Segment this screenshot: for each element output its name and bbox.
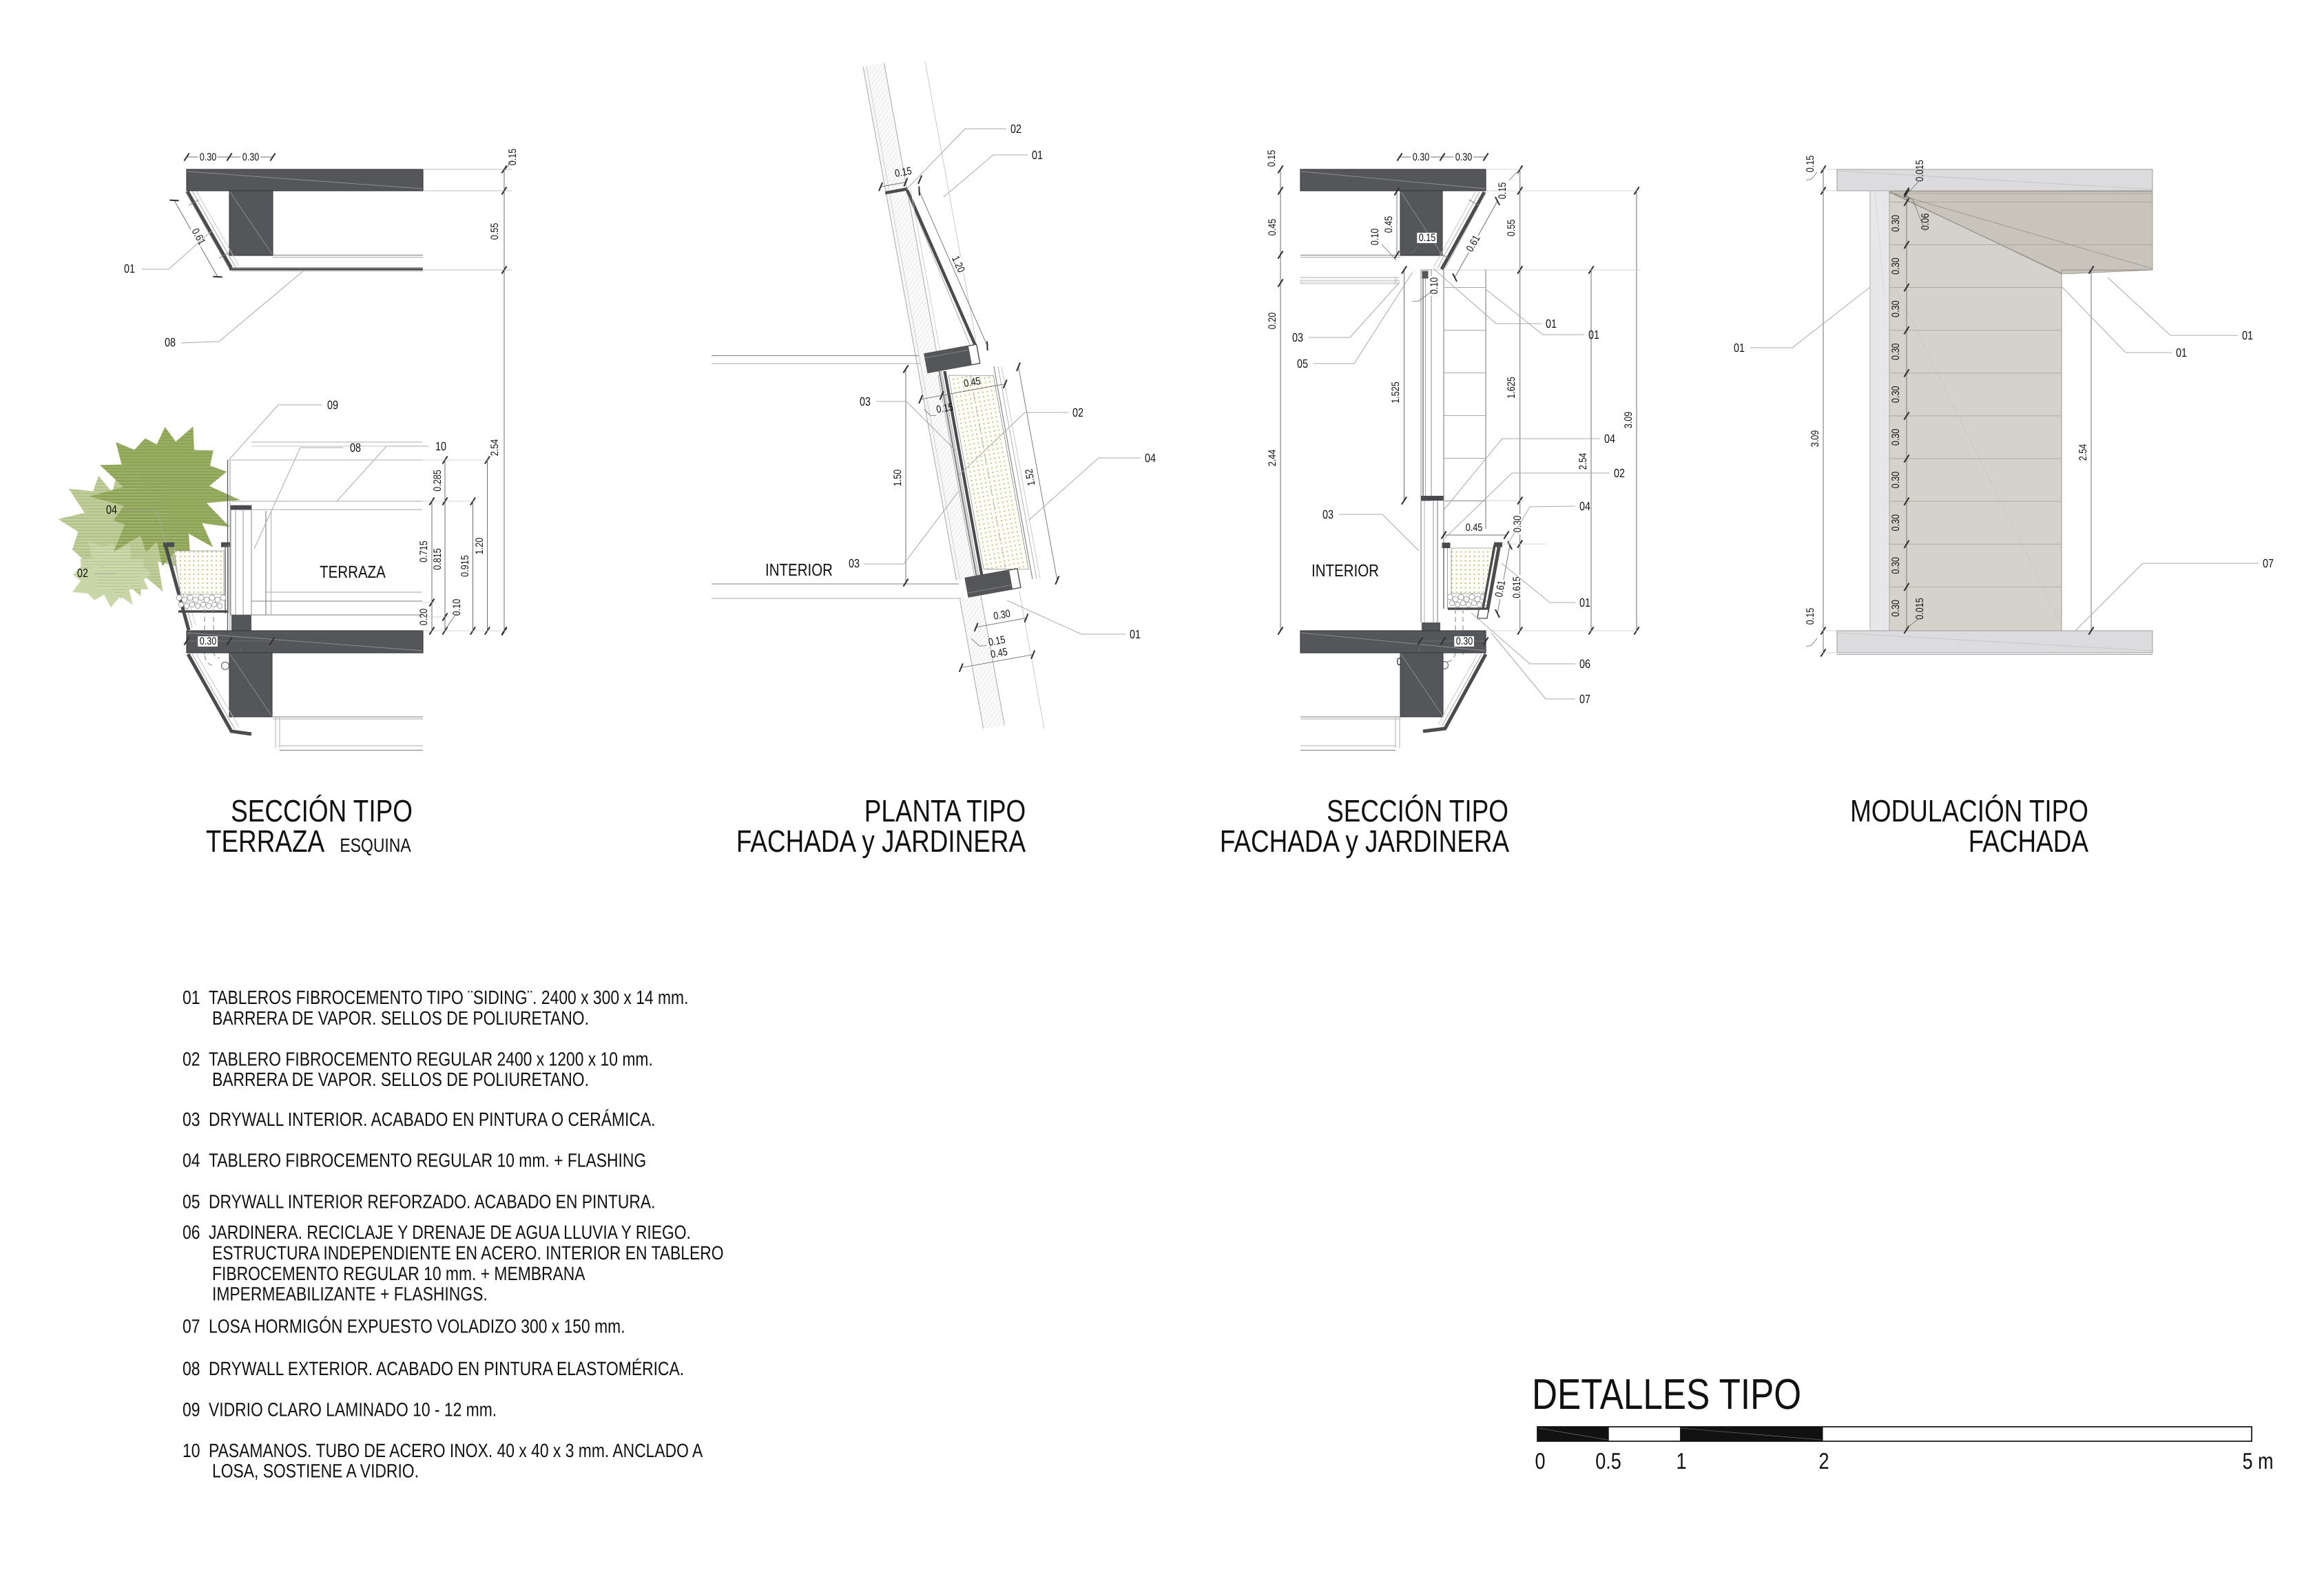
svg-text:06: 06 xyxy=(1579,657,1590,671)
svg-text:FACHADA y JARDINERA: FACHADA y JARDINERA xyxy=(1220,824,1509,859)
svg-text:0.285: 0.285 xyxy=(432,470,444,492)
svg-text:02: 02 xyxy=(1614,466,1625,480)
svg-text:0: 0 xyxy=(1535,1448,1545,1474)
svg-text:INTERIOR: INTERIOR xyxy=(765,561,833,580)
svg-text:06: 06 xyxy=(183,1222,200,1243)
svg-text:ESQUINA: ESQUINA xyxy=(340,835,411,856)
svg-text:01: 01 xyxy=(2176,346,2187,359)
svg-text:0.30: 0.30 xyxy=(242,151,260,163)
svg-text:DRYWALL EXTERIOR. ACABADO EN P: DRYWALL EXTERIOR. ACABADO EN PINTURA ELA… xyxy=(209,1358,684,1379)
svg-text:04: 04 xyxy=(106,503,117,516)
svg-text:04: 04 xyxy=(1579,499,1590,513)
svg-text:01: 01 xyxy=(1734,341,1745,355)
svg-text:02: 02 xyxy=(1072,406,1083,419)
svg-text:0.10: 0.10 xyxy=(451,599,463,616)
svg-text:03: 03 xyxy=(860,395,871,408)
svg-text:08: 08 xyxy=(183,1358,200,1379)
svg-text:09: 09 xyxy=(183,1399,200,1420)
svg-text:JARDINERA. RECICLAJE Y DRENAJE: JARDINERA. RECICLAJE Y DRENAJE DE AGUA L… xyxy=(209,1222,691,1243)
svg-text:1.525: 1.525 xyxy=(1390,381,1402,404)
svg-text:10: 10 xyxy=(183,1440,200,1461)
svg-text:3.09: 3.09 xyxy=(1623,412,1635,429)
svg-text:0.30: 0.30 xyxy=(1455,151,1473,163)
svg-text:0.10: 0.10 xyxy=(1429,278,1440,295)
svg-text:0.45: 0.45 xyxy=(1383,216,1395,233)
svg-text:0.45: 0.45 xyxy=(1466,522,1483,534)
svg-text:FACHADA: FACHADA xyxy=(1969,824,2088,859)
svg-text:0.45: 0.45 xyxy=(1267,219,1278,236)
svg-text:08: 08 xyxy=(165,335,176,349)
svg-text:FACHADA y JARDINERA: FACHADA y JARDINERA xyxy=(736,824,1026,859)
svg-text:0.30: 0.30 xyxy=(1890,215,1902,232)
svg-text:02: 02 xyxy=(183,1048,200,1069)
svg-text:0.30: 0.30 xyxy=(1413,151,1430,163)
svg-text:0.30: 0.30 xyxy=(1890,300,1902,317)
svg-text:DETALLES TIPO: DETALLES TIPO xyxy=(1532,1370,1801,1419)
svg-text:01: 01 xyxy=(1588,328,1599,342)
svg-text:TERRAZA: TERRAZA xyxy=(320,563,386,582)
svg-text:0.15: 0.15 xyxy=(1419,232,1436,244)
svg-text:VIDRIO CLARO LAMINADO 10 - 12: VIDRIO CLARO LAMINADO 10 - 12 mm. xyxy=(209,1399,497,1420)
svg-text:01: 01 xyxy=(124,262,135,275)
svg-text:0.15: 0.15 xyxy=(1805,156,1816,173)
svg-text:0.30: 0.30 xyxy=(1890,258,1902,275)
svg-text:07: 07 xyxy=(1579,692,1590,706)
svg-text:0.30: 0.30 xyxy=(1890,557,1902,574)
svg-text:ESTRUCTURA INDEPENDIENTE EN AC: ESTRUCTURA INDEPENDIENTE EN ACERO. INTER… xyxy=(212,1242,724,1264)
svg-text:02: 02 xyxy=(77,566,88,580)
svg-text:0.30: 0.30 xyxy=(1890,600,1902,617)
svg-text:BARRERA DE VAPOR. SELLOS DE PO: BARRERA DE VAPOR. SELLOS DE POLIURETANO. xyxy=(212,1007,589,1029)
svg-text:03: 03 xyxy=(183,1109,200,1130)
svg-text:0.30: 0.30 xyxy=(200,151,217,163)
svg-text:05: 05 xyxy=(1297,357,1308,370)
svg-text:1.50: 1.50 xyxy=(892,470,904,487)
svg-text:08: 08 xyxy=(350,441,361,454)
svg-text:0.015: 0.015 xyxy=(1914,160,1926,182)
svg-text:LOSA HORMIGÓN EXPUESTO VOLADIZ: LOSA HORMIGÓN EXPUESTO VOLADIZO 300 x 15… xyxy=(209,1316,625,1337)
svg-text:TERRAZA: TERRAZA xyxy=(206,824,324,859)
svg-text:0.615: 0.615 xyxy=(1511,576,1523,598)
svg-text:04: 04 xyxy=(1604,432,1615,446)
svg-text:TABLERO FIBROCEMENTO REGULAR 2: TABLERO FIBROCEMENTO REGULAR 2400 x 1200… xyxy=(209,1048,653,1069)
svg-text:02: 02 xyxy=(1010,122,1021,136)
svg-text:03: 03 xyxy=(1292,331,1303,344)
svg-text:0.55: 0.55 xyxy=(489,223,501,240)
svg-text:2.44: 2.44 xyxy=(1267,449,1278,466)
svg-text:0.30: 0.30 xyxy=(1456,636,1473,647)
svg-text:04: 04 xyxy=(183,1150,200,1171)
svg-text:0.715: 0.715 xyxy=(418,541,430,563)
svg-text:10: 10 xyxy=(435,439,446,453)
svg-text:0.30: 0.30 xyxy=(1890,429,1902,446)
svg-text:TABLEROS FIBROCEMENTO TIPO ¨SI: TABLEROS FIBROCEMENTO TIPO ¨SIDING¨. 240… xyxy=(209,987,688,1008)
svg-text:0.30: 0.30 xyxy=(1890,343,1902,360)
svg-text:0.015: 0.015 xyxy=(1914,598,1926,620)
svg-text:DRYWALL INTERIOR REFORZADO. AC: DRYWALL INTERIOR REFORZADO. ACABADO EN P… xyxy=(209,1191,656,1212)
svg-text:04: 04 xyxy=(1145,451,1156,465)
svg-text:09: 09 xyxy=(327,398,338,412)
svg-text:0.915: 0.915 xyxy=(459,555,471,577)
svg-text:0.10: 0.10 xyxy=(1369,229,1381,246)
svg-text:0.20: 0.20 xyxy=(1267,313,1278,330)
svg-text:01: 01 xyxy=(1130,627,1141,641)
svg-text:01: 01 xyxy=(1579,596,1590,609)
svg-text:0.15: 0.15 xyxy=(507,149,519,166)
svg-text:03: 03 xyxy=(1322,507,1334,521)
svg-text:07: 07 xyxy=(183,1316,200,1337)
svg-text:LOSA, SOSTIENE A VIDRIO.: LOSA, SOSTIENE A VIDRIO. xyxy=(212,1461,419,1482)
svg-text:1.20: 1.20 xyxy=(474,538,486,555)
svg-text:BARRERA DE VAPOR. SELLOS DE PO: BARRERA DE VAPOR. SELLOS DE POLIURETANO. xyxy=(212,1069,589,1090)
svg-text:05: 05 xyxy=(183,1191,200,1212)
svg-text:0.30: 0.30 xyxy=(1512,516,1524,533)
svg-text:PASAMANOS. TUBO DE ACERO INOX.: PASAMANOS. TUBO DE ACERO INOX. 40 x 40 x… xyxy=(209,1440,703,1461)
svg-text:0.30: 0.30 xyxy=(1890,472,1902,489)
svg-text:01: 01 xyxy=(1546,317,1557,331)
svg-text:01: 01 xyxy=(183,987,200,1008)
svg-text:0.30: 0.30 xyxy=(200,636,217,647)
svg-text:03: 03 xyxy=(849,556,860,570)
svg-text:0.5: 0.5 xyxy=(1595,1448,1621,1474)
svg-text:2.54: 2.54 xyxy=(1577,452,1589,470)
svg-text:0.15: 0.15 xyxy=(1805,608,1816,625)
svg-text:07: 07 xyxy=(2263,556,2274,570)
svg-text:2: 2 xyxy=(1818,1448,1829,1474)
svg-text:5 m: 5 m xyxy=(2242,1448,2273,1474)
svg-text:1: 1 xyxy=(1676,1448,1686,1474)
svg-text:FIBROCEMENTO REGULAR 10 mm. +: FIBROCEMENTO REGULAR 10 mm. + MEMBRANA xyxy=(212,1263,585,1284)
svg-text:INTERIOR: INTERIOR xyxy=(1311,561,1379,580)
svg-text:IMPERMEABILIZANTE + FLASHINGS.: IMPERMEABILIZANTE + FLASHINGS. xyxy=(212,1284,488,1305)
svg-text:01: 01 xyxy=(1032,148,1043,162)
svg-text:1.625: 1.625 xyxy=(1506,377,1517,399)
svg-text:2.54: 2.54 xyxy=(489,439,501,456)
svg-text:DRYWALL INTERIOR. ACABADO EN P: DRYWALL INTERIOR. ACABADO EN PINTURA O C… xyxy=(209,1109,656,1130)
svg-text:0.30: 0.30 xyxy=(1890,386,1902,404)
svg-text:TABLERO FIBROCEMENTO REGULAR 1: TABLERO FIBROCEMENTO REGULAR 10 mm. + FL… xyxy=(209,1150,646,1171)
svg-text:0.15: 0.15 xyxy=(1266,150,1278,167)
svg-text:01: 01 xyxy=(2242,328,2253,342)
svg-text:0.30: 0.30 xyxy=(1890,514,1902,532)
svg-text:2.54: 2.54 xyxy=(2077,443,2089,461)
svg-text:0.815: 0.815 xyxy=(432,548,444,570)
svg-text:3.09: 3.09 xyxy=(1809,430,1821,448)
svg-text:0.55: 0.55 xyxy=(1506,220,1517,237)
